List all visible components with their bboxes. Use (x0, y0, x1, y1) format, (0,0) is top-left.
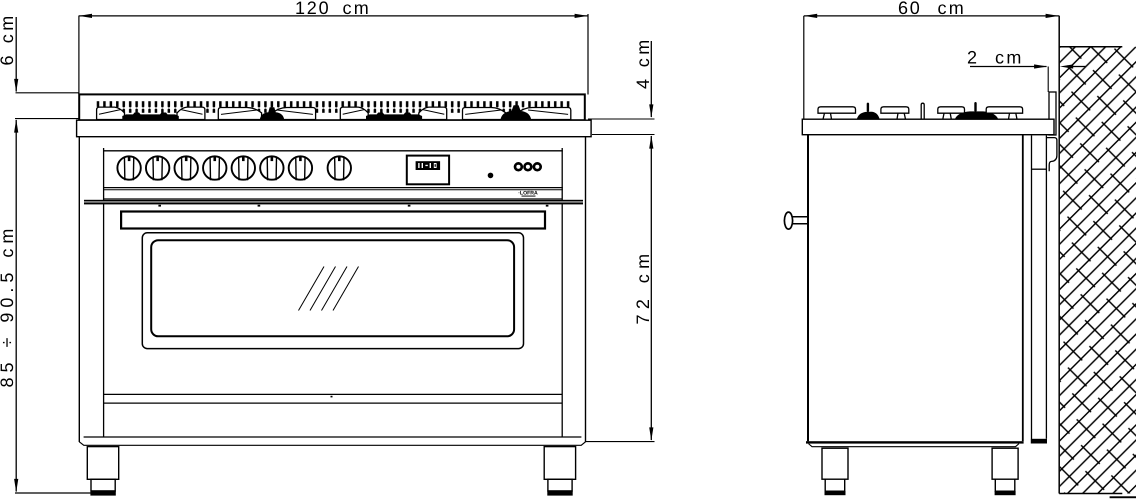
svg-text:4 cm: 4 cm (633, 36, 653, 89)
svg-text:cm: cm (995, 48, 1024, 68)
svg-text:72 cm: 72 cm (633, 248, 653, 324)
svg-text:2: 2 (967, 48, 979, 68)
svg-text:85 ÷ 90.5 cm: 85 ÷ 90.5 cm (0, 224, 17, 388)
svg-text:6 cm: 6 cm (0, 12, 17, 65)
